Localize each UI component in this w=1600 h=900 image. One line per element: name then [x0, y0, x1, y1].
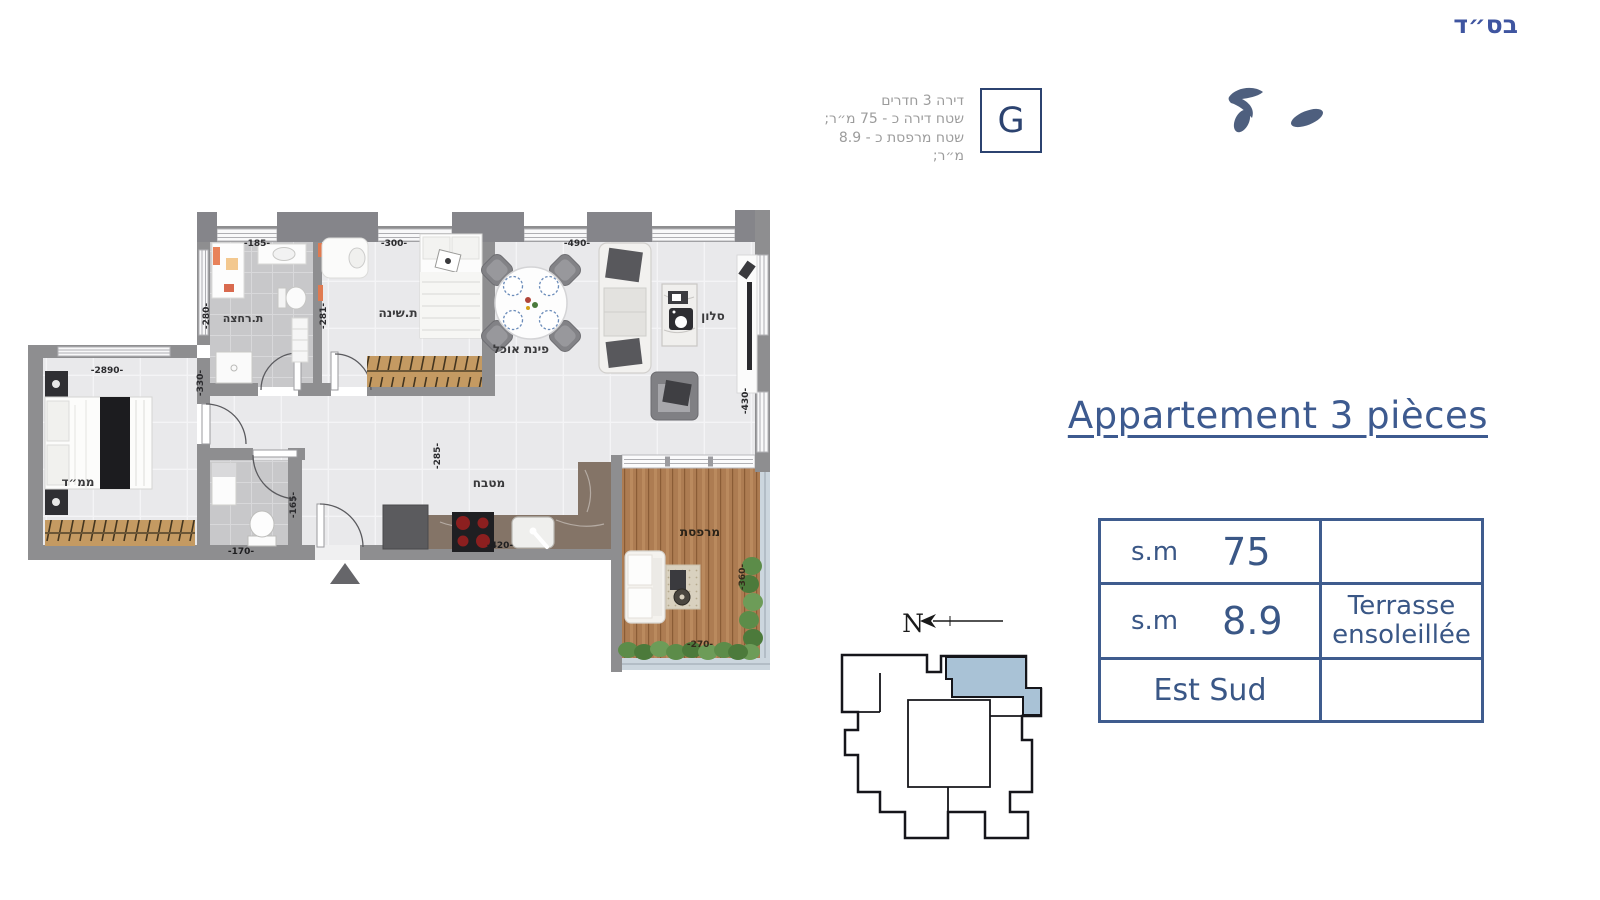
dim-balcony-width: -270- — [687, 640, 714, 650]
spec-row-orientation-note — [1322, 660, 1481, 720]
unit-info-line1: דירה 3 חדרים — [808, 92, 964, 110]
bedroom-bed — [420, 234, 482, 338]
dining-set — [479, 252, 584, 355]
spec-row-terrace: s.m 8.9 — [1101, 585, 1322, 660]
terrace-note-line1: Terrasse — [1348, 591, 1455, 621]
room-label-dining: פינת אוכל — [493, 342, 549, 356]
entrance-arrow — [330, 563, 360, 584]
spec-row-area: s.m 75 — [1101, 521, 1322, 585]
key-plan: N — [842, 609, 1041, 838]
room-label-bedroom: ת.שינה — [378, 306, 417, 320]
tv — [747, 282, 752, 370]
dim-hall-depth: -285- — [433, 443, 443, 470]
dim-mamad-depth: -330- — [196, 370, 206, 397]
orientation-value: Est Sud — [1154, 673, 1267, 708]
terrace-value: 8.9 — [1222, 599, 1282, 643]
unit-info-line2: שטח דירה כ - 75 מ״ר; — [808, 110, 964, 128]
dim-toilet-depth: -165- — [289, 492, 299, 519]
armchair — [651, 372, 698, 420]
fridge — [383, 505, 428, 549]
tv-console — [737, 255, 757, 393]
spec-row-orientation: Est Sud — [1101, 660, 1322, 720]
spec-row-terrace-note: Terrasse ensoleillée — [1322, 585, 1481, 660]
wc-toilet — [248, 511, 276, 546]
side-table — [662, 284, 697, 346]
unit-info: דירה 3 חדרים שטח דירה כ - 75 מ״ר; שטח מר… — [808, 92, 964, 166]
room-label-kitchen: מטבח — [473, 476, 505, 490]
dim-bedroom-width: -300- — [381, 239, 408, 249]
room-label-mamad: ממ״ד — [62, 475, 95, 489]
dim-living-width: -490- — [564, 239, 591, 249]
dim-bathroom-width: -185- — [244, 239, 271, 249]
room-label-bathroom: ת.רחצה — [223, 312, 264, 325]
bird-icons — [1229, 88, 1326, 135]
spec-table: s.m 75 s.m 8.9 Terrasse ensoleillée Est … — [1098, 518, 1484, 723]
north-arrow: N — [902, 609, 1003, 638]
outdoor-sofa — [625, 551, 665, 623]
dim-kitchen-width: -420- — [487, 541, 514, 551]
terrace-unit-label: s.m — [1131, 606, 1178, 636]
dining-table — [495, 267, 567, 339]
unit-letter-box: G — [980, 88, 1042, 153]
dim-bathroom-depth: -280- — [202, 303, 212, 330]
room-label-living: סלון — [701, 309, 725, 323]
page-title: Appartement 3 pièces — [1000, 394, 1488, 437]
bsd-text: בס״ד — [1430, 10, 1518, 39]
dim-bedroom-depth: -281- — [319, 303, 329, 330]
sofa — [599, 243, 651, 373]
dim-balcony-depth: -360- — [738, 564, 748, 591]
dim-toilet-width: -170- — [228, 547, 255, 557]
floor-plan-svg: ת.רחצה ת.שינה פינת אוכל סלון ממ״ד מטבח מ… — [0, 0, 1600, 900]
room-label-balcony: מרפסת — [680, 525, 720, 539]
dim-living-depth: -430- — [741, 388, 751, 415]
toilet — [278, 287, 306, 309]
spec-row-area-note — [1322, 521, 1481, 585]
terrace-note-line2: ensoleillée — [1332, 620, 1471, 650]
dim-mamad-width: -2890- — [91, 366, 124, 376]
north-letter: N — [902, 609, 924, 638]
sink — [512, 517, 554, 548]
shower — [216, 352, 252, 383]
unit-letter: G — [997, 101, 1024, 141]
unit-info-line3: שטח מרפסת כ - 8.9 מ״ר; — [808, 129, 964, 166]
page: ת.רחצה ת.שינה פינת אוכל סלון ממ״ד מטבח מ… — [0, 0, 1600, 900]
area-unit-label: s.m — [1131, 537, 1178, 567]
area-value: 75 — [1222, 530, 1270, 574]
